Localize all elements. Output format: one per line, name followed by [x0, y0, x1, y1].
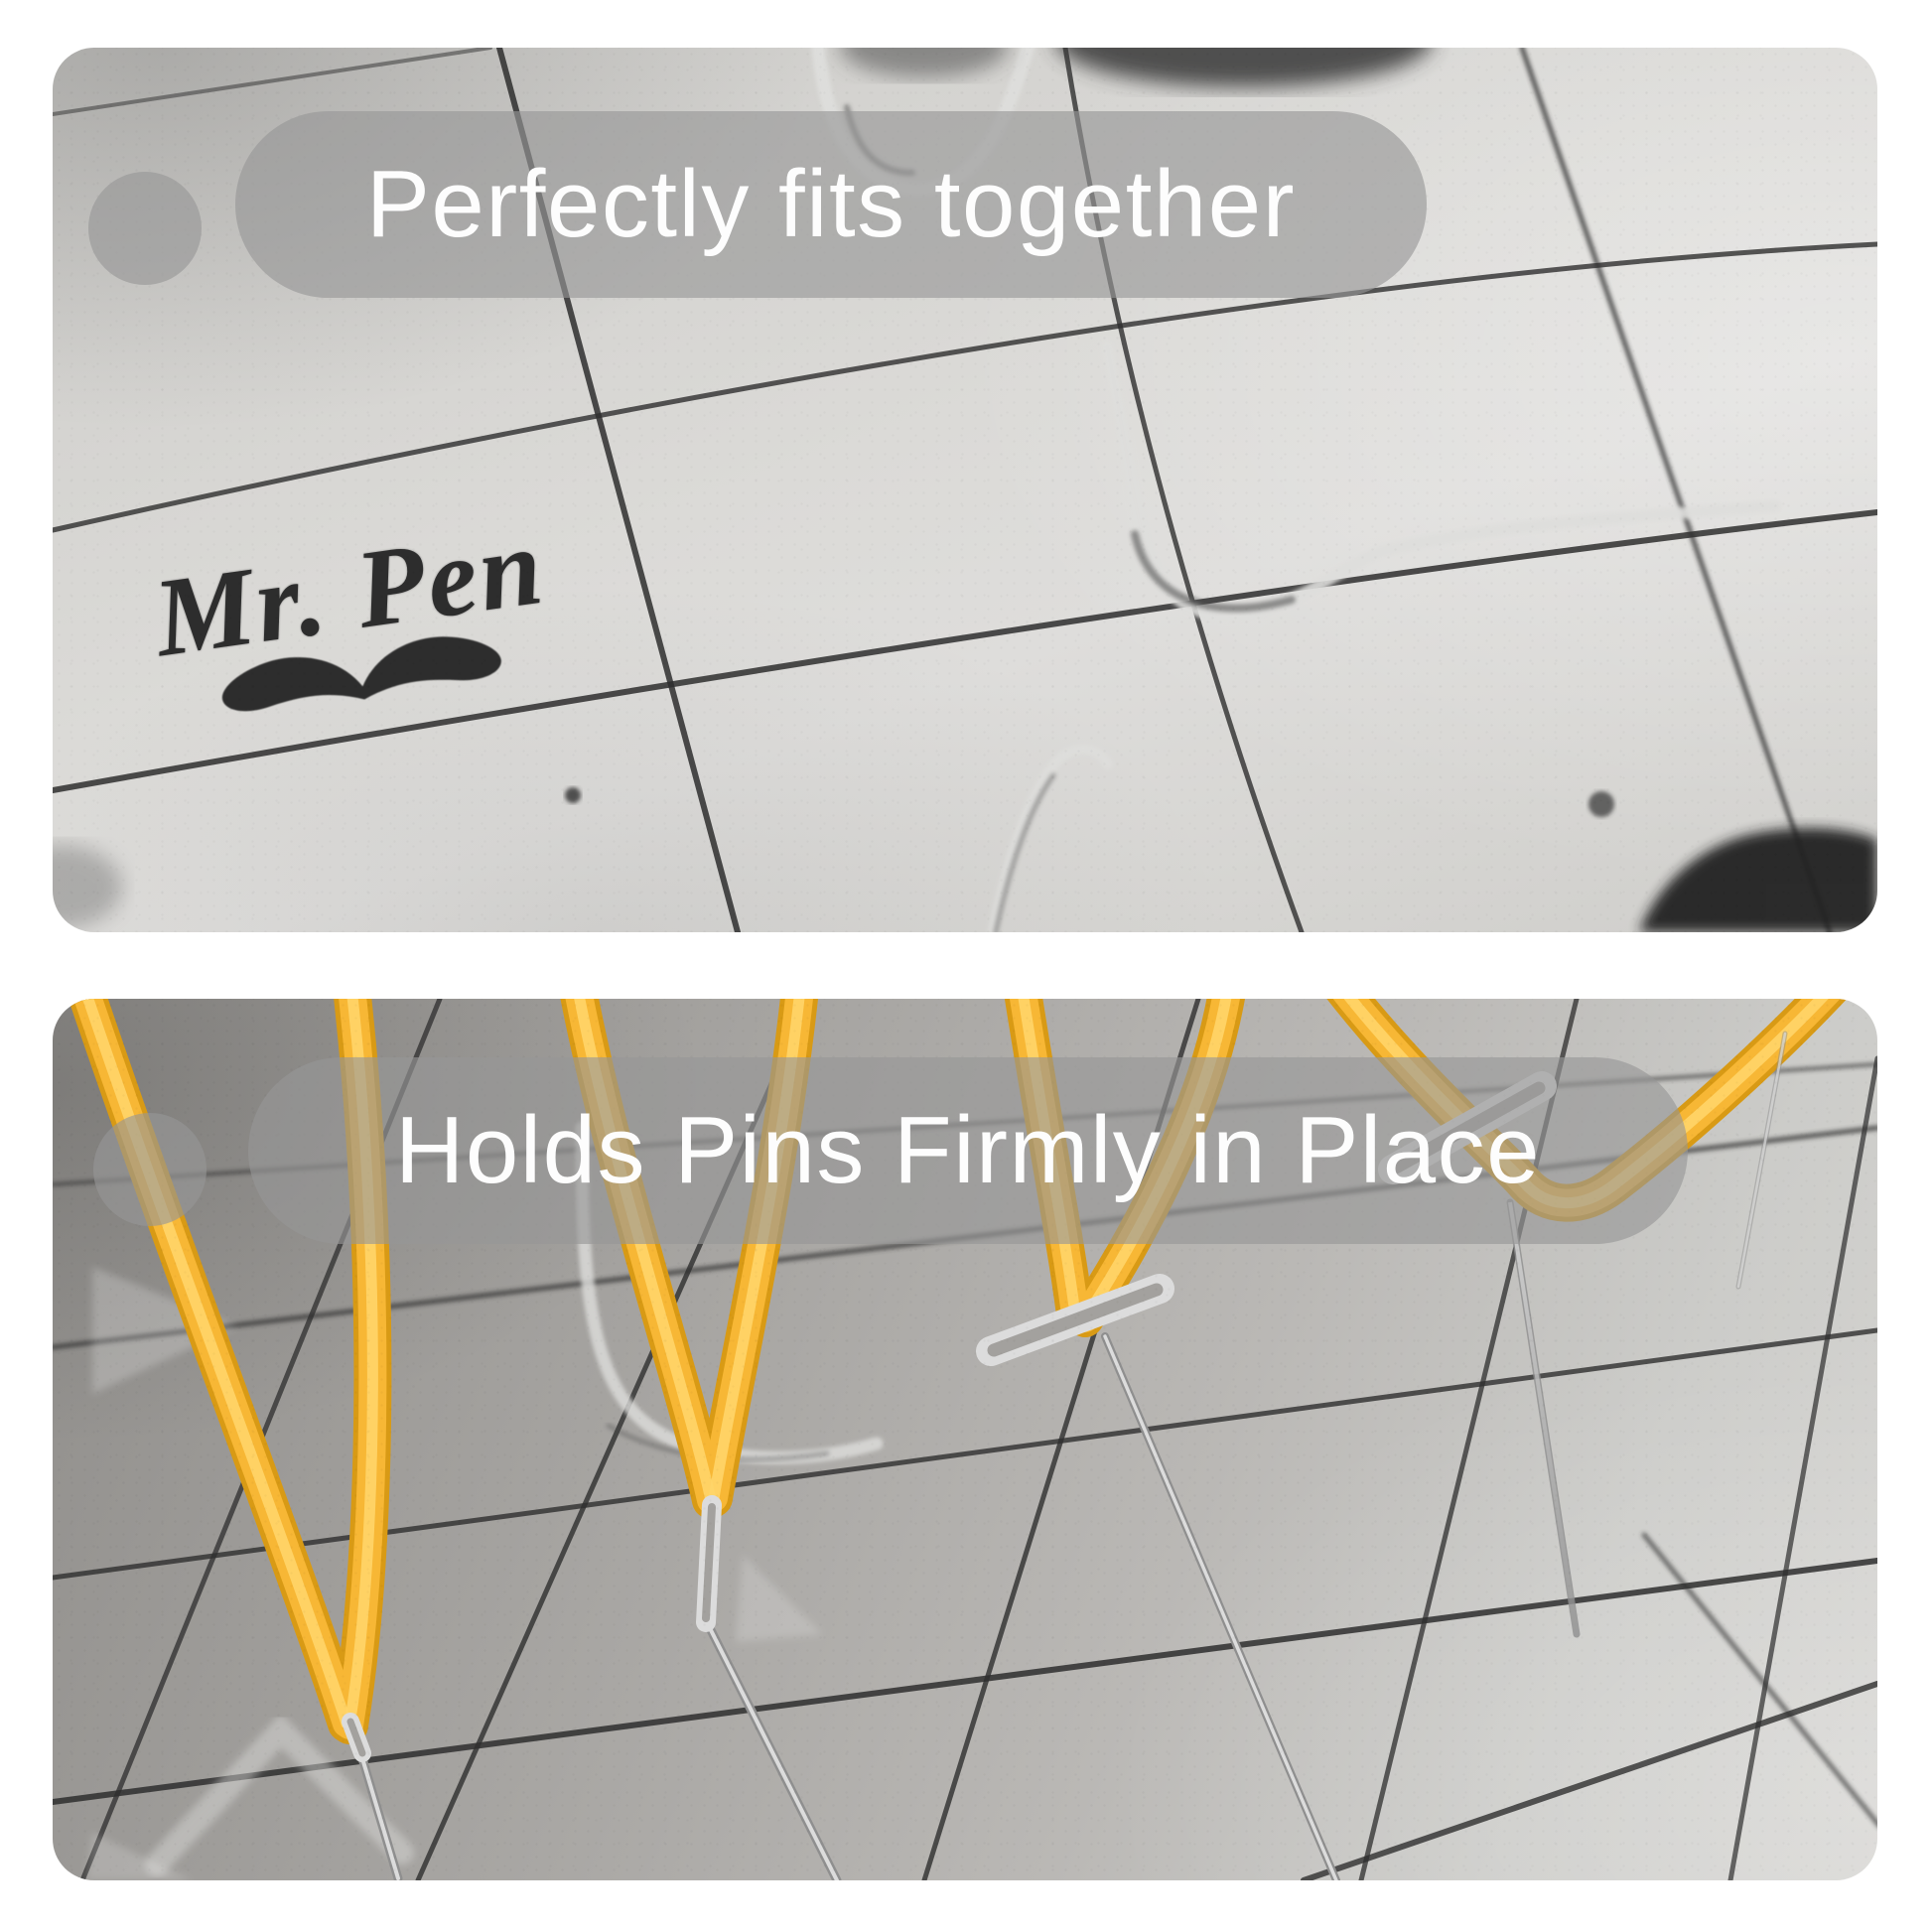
- caption-top: Perfectly fits together: [88, 158, 1427, 298]
- caption-bottom: Holds Pins Firmly in Place: [93, 1095, 1688, 1244]
- caption-accent-circle: [88, 172, 202, 285]
- t-pin-icon: [706, 1505, 837, 1880]
- caption-text: Holds Pins Firmly in Place: [395, 1096, 1541, 1205]
- bottom-photo-panel: Holds Pins Firmly in Place: [53, 999, 1877, 1880]
- caption-pill: Holds Pins Firmly in Place: [248, 1057, 1688, 1244]
- top-photo-panel: Mr. Pen Perfectly fits together: [53, 48, 1877, 932]
- caption-text: Perfectly fits together: [366, 150, 1296, 259]
- caption-pill: Perfectly fits together: [235, 111, 1427, 298]
- t-pin-icon: [991, 1289, 1336, 1880]
- product-image: Mr. Pen Perfectly fits together: [0, 0, 1932, 1932]
- caption-accent-circle: [93, 1113, 207, 1226]
